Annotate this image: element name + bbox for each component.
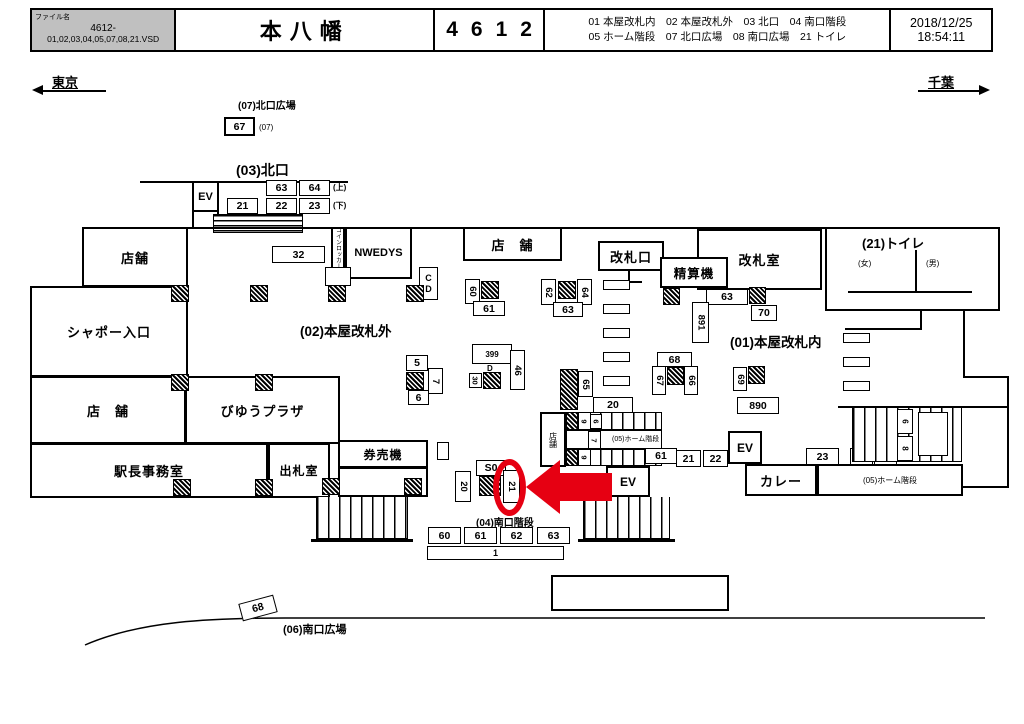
header-bar: ファイル名 4612- 01,02,03,04,05,07,08,21.VSD … bbox=[30, 8, 993, 52]
room-curry-shop: カレー bbox=[745, 464, 817, 496]
legend-line-1: 01 本屋改札内 02 本屋改札外 03 北口 04 南口階段 bbox=[588, 15, 846, 30]
sign-891: 891 bbox=[692, 302, 709, 343]
south-stairs-west bbox=[316, 497, 408, 539]
sign-66-text: 66 bbox=[685, 375, 696, 386]
pillar bbox=[322, 478, 340, 495]
sign-cd-top: C bbox=[425, 273, 432, 284]
ticket-gate-east bbox=[843, 333, 870, 343]
room-ticket-machines: 券売機 bbox=[338, 440, 428, 468]
pillar bbox=[481, 281, 499, 299]
sign-32: 32 bbox=[272, 246, 325, 263]
sign-23-north: 23 bbox=[299, 198, 330, 214]
wall-line bbox=[920, 310, 922, 329]
sign-5: 5 bbox=[406, 355, 428, 371]
sign-7-text: 7 bbox=[430, 378, 441, 383]
pillar bbox=[328, 285, 346, 302]
pillar bbox=[406, 372, 424, 390]
sign-9a-text: 9 bbox=[580, 419, 589, 423]
sign-22-row: 22 bbox=[703, 450, 728, 467]
sign-21-north: 21 bbox=[227, 198, 258, 214]
stairs-landing-bar bbox=[578, 539, 675, 542]
wall-line bbox=[963, 376, 1009, 378]
toilet-female-label: (女) bbox=[858, 258, 871, 269]
room-coin-locker: コインロッカー bbox=[331, 227, 345, 269]
file-code: 4612- bbox=[90, 23, 116, 34]
room-nwedys-shop: NWEDYS bbox=[345, 227, 412, 279]
sign-8-east-text: 8 bbox=[900, 446, 909, 450]
sign-63-north: 63 bbox=[266, 180, 297, 196]
area-label-north-exit: (03)北口 bbox=[236, 160, 289, 180]
toilet-male-label: (男) bbox=[926, 258, 939, 269]
pillar bbox=[171, 374, 189, 391]
direction-east-label: 千葉 bbox=[928, 72, 954, 91]
sign-6-stairs-text: 6 bbox=[591, 419, 600, 423]
elevator-east: EV bbox=[728, 431, 762, 464]
wall-line bbox=[845, 328, 922, 330]
south-plaza-curve bbox=[0, 585, 1024, 665]
north-stairs bbox=[213, 214, 303, 233]
ticket-gate bbox=[603, 376, 630, 386]
station-number: 4612 bbox=[433, 18, 545, 42]
sign-399: 399 bbox=[472, 344, 512, 364]
down-note: (下) bbox=[333, 200, 346, 211]
station-name-cell: 本八幡 bbox=[176, 10, 435, 50]
stairs-inner-box bbox=[918, 412, 948, 456]
area-label-platform-stairs-center: (05)ホーム階段 bbox=[612, 434, 659, 444]
room-shop-stairs: 店舗 bbox=[540, 412, 566, 467]
sign-891-text: 891 bbox=[695, 315, 706, 331]
south-stairs-east bbox=[583, 497, 670, 539]
note-07: (07) bbox=[259, 123, 273, 132]
pillar bbox=[250, 285, 268, 302]
ticket-gate bbox=[603, 352, 630, 362]
sign-8-east: 8 bbox=[897, 436, 913, 461]
east-arrow-icon bbox=[979, 85, 990, 95]
sign-7-stairs-text: 7 bbox=[590, 438, 599, 442]
highlight-ellipse bbox=[493, 459, 526, 516]
file-label: ファイル名 bbox=[35, 12, 70, 22]
ticket-gate bbox=[603, 280, 630, 290]
sign-64-text: 64 bbox=[579, 287, 590, 298]
elevator-north: EV bbox=[192, 181, 219, 212]
sign-23-row: 23 bbox=[806, 448, 839, 465]
pillar bbox=[667, 367, 684, 385]
sign-68: 68 bbox=[657, 352, 692, 367]
sign-6-east: 6 bbox=[897, 409, 913, 434]
sign-64-north: 64 bbox=[299, 180, 330, 196]
room-chapeau-entrance: シャポー入口 bbox=[30, 286, 188, 377]
highlight-arrow-head bbox=[526, 460, 560, 514]
file-info-cell: ファイル名 4612- 01,02,03,04,05,07,08,21.VSD bbox=[32, 10, 176, 50]
sign-46-text: 46 bbox=[512, 365, 523, 376]
date: 2018/12/25 bbox=[910, 16, 973, 30]
pillar bbox=[663, 288, 680, 305]
ticket-gate-east bbox=[843, 381, 870, 391]
sign-69: 69 bbox=[733, 367, 747, 391]
sign-30: 30 bbox=[469, 373, 482, 388]
wall-line bbox=[963, 486, 1009, 488]
time: 18:54:11 bbox=[917, 30, 965, 44]
datetime-cell: 2018/12/25 18:54:11 bbox=[891, 10, 991, 50]
pillar bbox=[749, 287, 766, 304]
sign-63-south: 63 bbox=[537, 527, 570, 544]
sign-20-rotated-text: 20 bbox=[457, 481, 468, 492]
sign-9b: 9 bbox=[578, 449, 591, 466]
area-label-outside-gates: (02)本屋改札外 bbox=[300, 320, 392, 340]
area-label-inside-gates: (01)本屋改札内 bbox=[730, 331, 822, 351]
sign-62-text: 62 bbox=[543, 287, 554, 298]
pillar bbox=[404, 478, 422, 495]
pillar bbox=[748, 366, 765, 384]
station-name: 本八幡 bbox=[260, 14, 350, 46]
sign-7: 7 bbox=[428, 368, 443, 394]
sign-21-row: 21 bbox=[676, 450, 701, 467]
small-sign-box bbox=[437, 442, 449, 460]
sign-65: 65 bbox=[578, 371, 593, 397]
room-platform-stairs-east: (05)ホーム階段 bbox=[817, 464, 963, 496]
station-map-canvas: ファイル名 4612- 01,02,03,04,05,07,08,21.VSD … bbox=[0, 0, 1024, 724]
sign-70: 70 bbox=[751, 305, 777, 321]
legend-cell: 01 本屋改札内 02 本屋改札外 03 北口 04 南口階段 05 ホーム階段… bbox=[545, 10, 891, 50]
sign-69-text: 69 bbox=[734, 374, 745, 385]
sign-7-stairs: 7 bbox=[588, 431, 601, 449]
file-name: 01,02,03,04,05,07,08,21.VSD bbox=[47, 34, 159, 44]
stairs-landing-bar bbox=[311, 539, 413, 542]
ticket-gate bbox=[603, 328, 630, 338]
elevator-center: EV bbox=[606, 466, 650, 497]
room-shop-west: 店 舗 bbox=[30, 376, 186, 444]
area-label-south-plaza: (06)南口広場 bbox=[283, 621, 347, 637]
sign-61-south: 61 bbox=[464, 527, 497, 544]
sign-63: 63 bbox=[553, 302, 583, 317]
pillar bbox=[566, 412, 578, 430]
highlight-arrow-shaft bbox=[558, 473, 612, 501]
room-stationmaster-office: 駅長事務室 bbox=[30, 443, 268, 498]
sign-65-text: 65 bbox=[580, 379, 591, 390]
pillar bbox=[483, 372, 501, 389]
room-fare-adjustment: 精算機 bbox=[660, 257, 728, 288]
sign-22-north: 22 bbox=[266, 198, 297, 214]
sign-66: 66 bbox=[684, 366, 698, 395]
pillar bbox=[255, 479, 273, 496]
ticket-gate bbox=[603, 304, 630, 314]
sign-1: 1 bbox=[427, 546, 564, 560]
ticket-gate-east bbox=[843, 357, 870, 367]
sign-6-stairs: 6 bbox=[590, 414, 602, 429]
sign-6: 6 bbox=[408, 390, 429, 405]
locker-box bbox=[325, 267, 351, 286]
wall-line bbox=[963, 310, 965, 377]
sign-20-rotated: 20 bbox=[455, 471, 471, 502]
sign-67-inside: 67 bbox=[652, 366, 666, 395]
sign-60-south: 60 bbox=[428, 527, 461, 544]
toilet-divider-line bbox=[915, 250, 917, 292]
room-ticket-gate: 改札口 bbox=[598, 241, 664, 271]
room-shop-top: 店 舗 bbox=[463, 227, 562, 261]
east-arrow-line bbox=[918, 90, 980, 92]
sign-20: 20 bbox=[593, 397, 633, 413]
sign-30-text: 30 bbox=[471, 376, 480, 384]
room-ticket-office: 出札室 bbox=[268, 443, 330, 498]
sign-cd-bottom: D bbox=[425, 284, 432, 295]
sign-9b-text: 9 bbox=[580, 455, 589, 459]
sign-46: 46 bbox=[510, 350, 525, 390]
west-arrow-icon bbox=[32, 85, 43, 95]
west-arrow-line bbox=[40, 90, 106, 92]
legend-line-2: 05 ホーム階段 07 北口広場 08 南口広場 21 トイレ bbox=[589, 30, 847, 45]
station-number-cell: 4612 bbox=[435, 10, 545, 50]
pillar bbox=[566, 449, 578, 466]
toilet-divider-line bbox=[848, 291, 972, 293]
sign-67: 67 bbox=[224, 117, 255, 136]
sign-67-inside-text: 67 bbox=[653, 375, 664, 386]
pillar bbox=[558, 281, 576, 299]
sign-63-office: 63 bbox=[706, 289, 748, 305]
sign-61-stairs: 61 bbox=[645, 448, 677, 464]
sign-61: 61 bbox=[473, 301, 505, 316]
pillar bbox=[255, 374, 273, 391]
wall-line bbox=[1007, 376, 1009, 488]
sign-6-east-text: 6 bbox=[900, 419, 909, 423]
sign-62-south: 62 bbox=[500, 527, 533, 544]
sign-60-text: 60 bbox=[467, 286, 478, 297]
area-label-north-plaza: (07)北口広場 bbox=[238, 97, 296, 112]
pillar bbox=[560, 369, 578, 410]
up-note: (上) bbox=[333, 182, 346, 193]
pillar bbox=[406, 285, 424, 302]
sign-890: 890 bbox=[737, 397, 779, 414]
pillar bbox=[173, 479, 191, 496]
pillar bbox=[171, 285, 189, 302]
room-shop-nw: 店舗 bbox=[82, 227, 188, 287]
direction-west-label: 東京 bbox=[52, 72, 78, 91]
